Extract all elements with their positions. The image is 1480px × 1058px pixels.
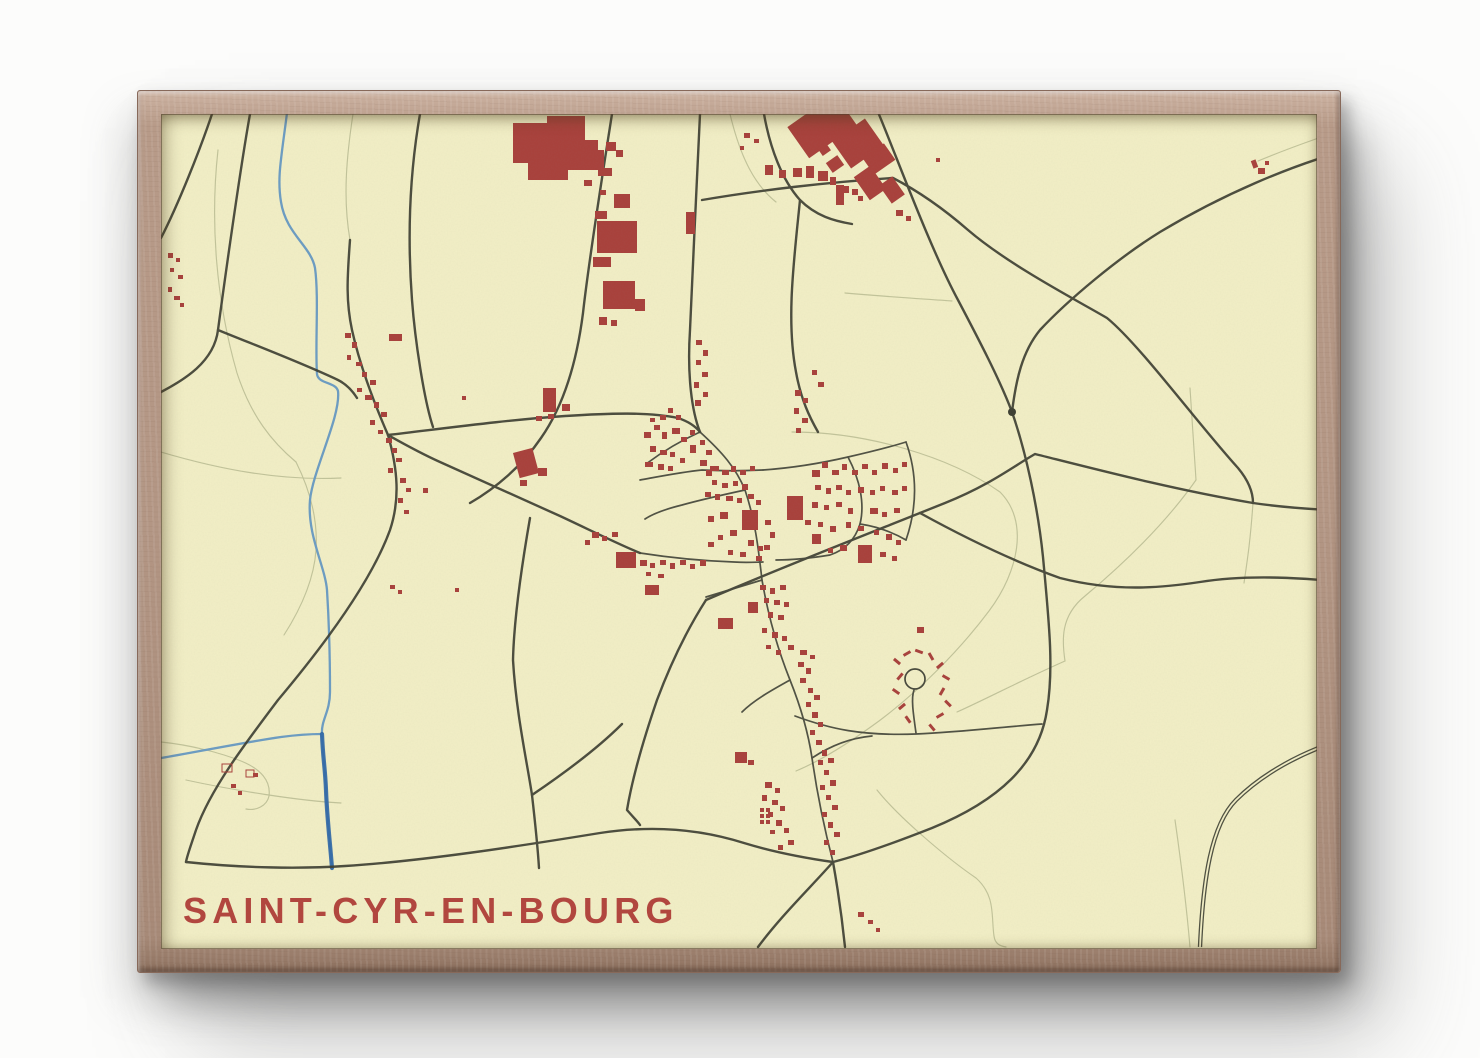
map-paper: SAINT-CYR-EN-BOURG: [161, 114, 1317, 949]
map-svg: SAINT-CYR-EN-BOURG: [161, 114, 1317, 949]
poster-frame: SAINT-CYR-EN-BOURG: [137, 90, 1341, 973]
paper-grain-overlay: [161, 114, 1317, 949]
